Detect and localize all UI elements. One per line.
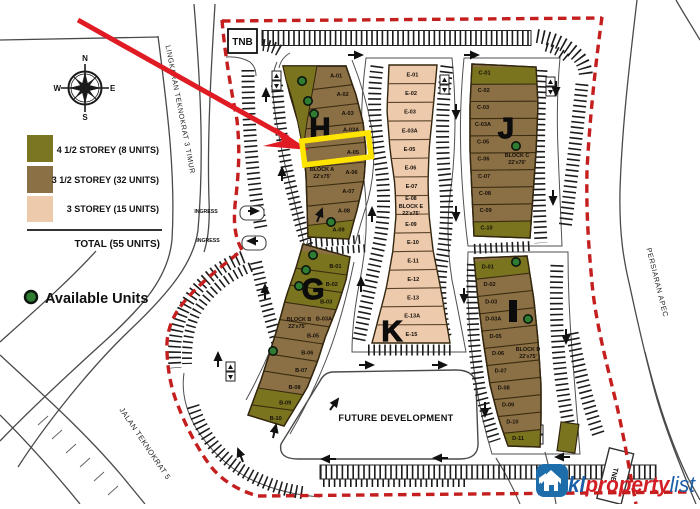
svg-text:C-03A: C-03A (475, 122, 491, 128)
svg-text:BLOCK E: BLOCK E (399, 204, 424, 210)
svg-text:B-07: B-07 (295, 368, 307, 374)
svg-text:E-09: E-09 (405, 222, 416, 228)
svg-text:D-08: D-08 (498, 386, 510, 392)
svg-text:22'x70': 22'x70' (508, 160, 526, 166)
svg-text:A-01: A-01 (330, 73, 342, 79)
svg-text:INGRESS: INGRESS (196, 238, 220, 244)
svg-text:B-05: B-05 (307, 333, 319, 339)
svg-text:E-12: E-12 (407, 277, 419, 283)
svg-text:C-10: C-10 (481, 225, 493, 231)
svg-text:D-02: D-02 (483, 282, 495, 288)
svg-text:D-10: D-10 (506, 419, 518, 425)
svg-text:E-11: E-11 (407, 259, 419, 265)
svg-text:TOTAL (55 UNITS): TOTAL (55 UNITS) (74, 239, 160, 250)
svg-text:A-03: A-03 (342, 111, 354, 117)
svg-text:E-13A: E-13A (404, 314, 420, 320)
svg-text:Available Units: Available Units (45, 291, 148, 307)
svg-text:3 1/2 STOREY (32 UNITS): 3 1/2 STOREY (32 UNITS) (52, 175, 159, 185)
svg-text:B-01: B-01 (329, 264, 341, 270)
svg-text:BLOCK D: BLOCK D (516, 347, 541, 353)
svg-text:E-02: E-02 (405, 91, 417, 97)
svg-text:E-03: E-03 (404, 110, 416, 116)
svg-text:D-07: D-07 (495, 368, 507, 374)
svg-text:B-09: B-09 (279, 401, 291, 407)
svg-text:C-08: C-08 (479, 191, 491, 197)
svg-text:E: E (110, 84, 116, 93)
svg-text:D-03: D-03 (485, 299, 497, 305)
svg-text:klpropertylist: klpropertylist (568, 472, 696, 497)
svg-text:C-03: C-03 (477, 105, 489, 111)
svg-text:22'x75': 22'x75' (313, 174, 331, 180)
svg-text:A-06: A-06 (345, 170, 357, 176)
svg-text:N: N (82, 54, 88, 63)
svg-text:E-01: E-01 (406, 72, 418, 78)
svg-text:A-05: A-05 (347, 150, 359, 156)
svg-text:E-07: E-07 (406, 184, 418, 190)
svg-text:B-03A: B-03A (316, 316, 332, 322)
svg-text:D-09: D-09 (502, 403, 514, 409)
svg-text:4 1/2 STOREY (8 UNITS): 4 1/2 STOREY (8 UNITS) (57, 145, 159, 155)
svg-text:E-15: E-15 (405, 332, 417, 338)
svg-text:J: J (498, 113, 514, 145)
svg-text:D-11: D-11 (512, 436, 524, 442)
svg-text:C-09: C-09 (480, 208, 492, 214)
svg-text:22'x75': 22'x75' (402, 211, 420, 217)
svg-text:C-05: C-05 (477, 139, 489, 145)
svg-text:D-01: D-01 (482, 265, 494, 271)
svg-text:K: K (382, 316, 403, 348)
svg-text:B-08: B-08 (288, 385, 300, 391)
svg-text:E-08: E-08 (405, 196, 416, 202)
svg-text:A-08: A-08 (338, 209, 350, 215)
svg-text:22'x75': 22'x75' (288, 324, 306, 330)
svg-text:22'x75': 22'x75' (519, 354, 537, 360)
svg-text:C-02: C-02 (478, 88, 490, 94)
svg-text:E-06: E-06 (405, 166, 417, 172)
svg-text:E-05: E-05 (404, 147, 416, 153)
svg-text:A-09: A-09 (333, 228, 345, 234)
svg-text:B-06: B-06 (301, 351, 313, 357)
svg-text:C-07: C-07 (478, 174, 490, 180)
svg-text:BLOCK C: BLOCK C (505, 153, 530, 159)
svg-text:BLOCK B: BLOCK B (287, 317, 312, 323)
svg-text:A-07: A-07 (342, 189, 354, 195)
svg-text:G: G (302, 274, 325, 306)
svg-text:D-05: D-05 (489, 334, 501, 340)
svg-text:E-03A: E-03A (402, 128, 418, 134)
svg-text:INGRESS: INGRESS (194, 209, 218, 215)
svg-text:B-02: B-02 (326, 282, 338, 288)
svg-text:W: W (53, 84, 61, 93)
svg-text:E-10: E-10 (407, 240, 419, 246)
svg-text:C-06: C-06 (477, 157, 489, 163)
svg-text:S: S (82, 113, 88, 122)
svg-text:FUTURE DEVELOPMENT: FUTURE DEVELOPMENT (338, 413, 453, 423)
svg-text:A-02: A-02 (337, 92, 349, 98)
svg-text:E-13: E-13 (407, 295, 419, 301)
svg-text:D-06: D-06 (492, 351, 504, 357)
svg-text:D-03A: D-03A (485, 317, 501, 323)
svg-text:3 STOREY (15 UNITS): 3 STOREY (15 UNITS) (67, 204, 159, 214)
svg-text:C-01: C-01 (479, 71, 491, 77)
svg-text:B-10: B-10 (270, 416, 282, 422)
svg-text:TNB: TNB (232, 37, 253, 48)
svg-text:BLOCK A: BLOCK A (310, 167, 334, 173)
